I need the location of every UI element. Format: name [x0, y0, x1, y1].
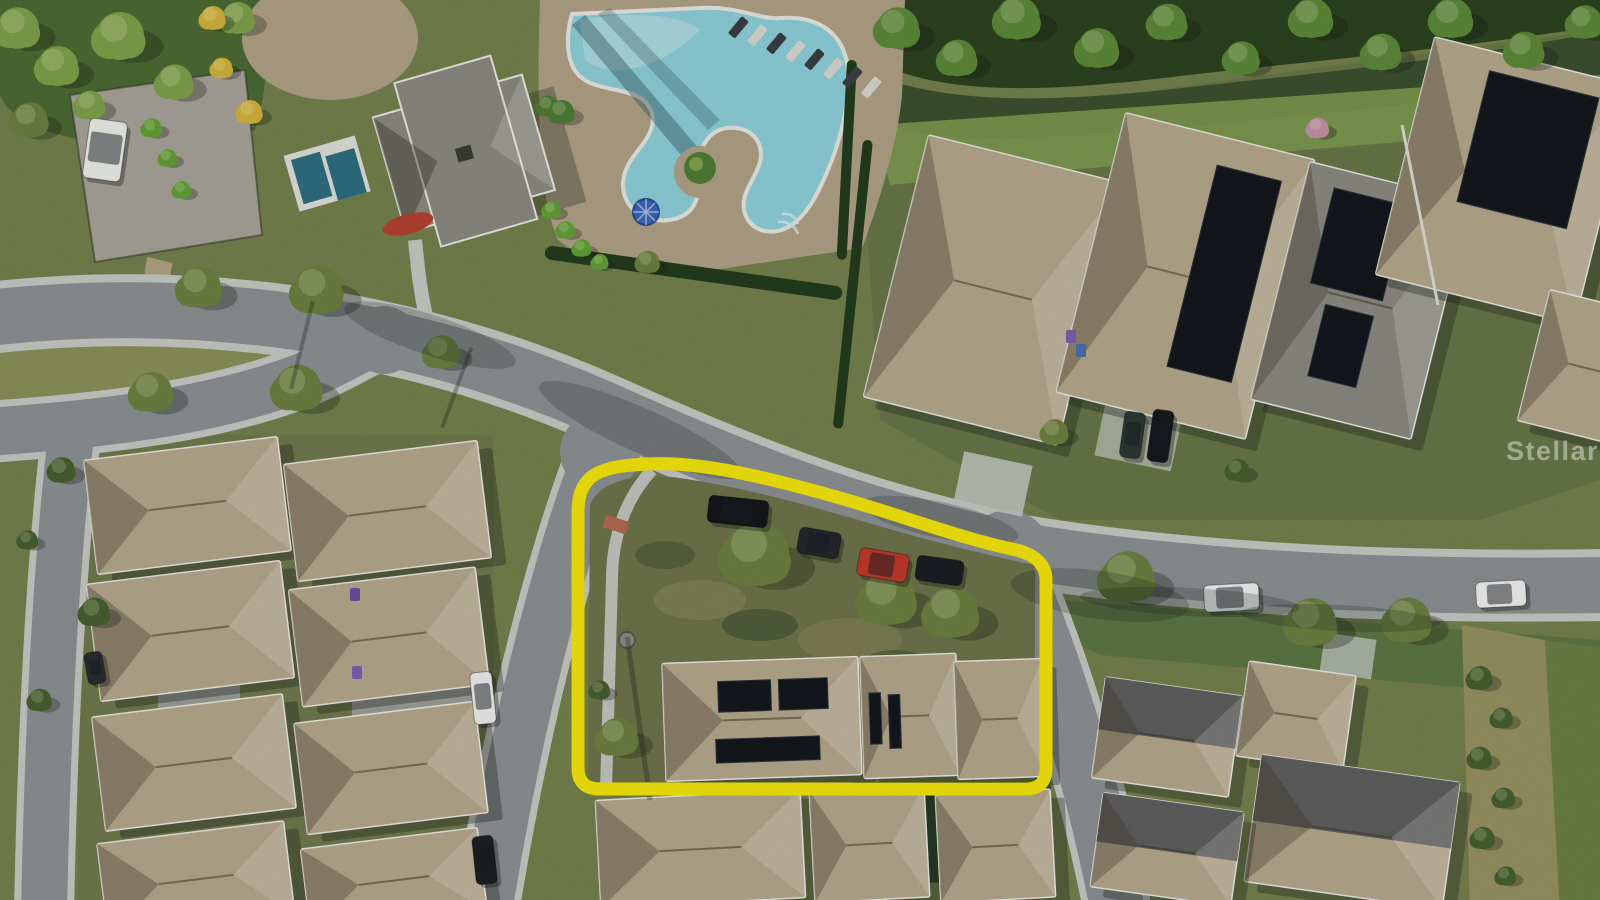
stellar-mls-watermark: StellarMLS [1506, 436, 1600, 466]
aerial-photo: StellarMLS [0, 0, 1600, 900]
photo-grain [0, 0, 1600, 900]
aerial-photo-canvas: StellarMLS [0, 0, 1600, 900]
